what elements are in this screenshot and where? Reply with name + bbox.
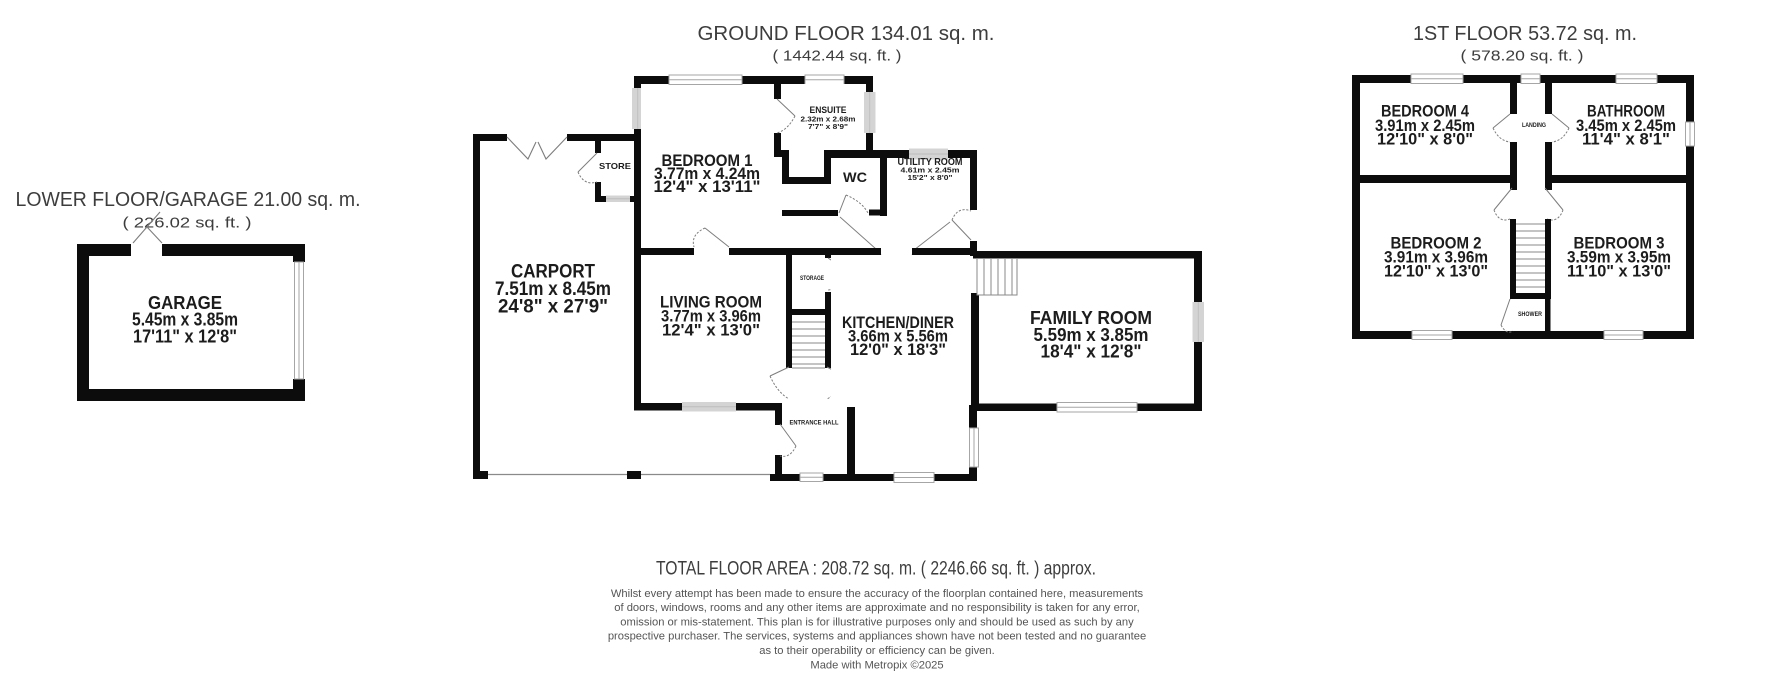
svg-text:TOTAL FLOOR AREA : 208.72 sq.: TOTAL FLOOR AREA : 208.72 sq. m. ( 2246.…: [656, 559, 1096, 580]
svg-text:11'10" x 13'0": 11'10" x 13'0": [1567, 262, 1671, 281]
svg-text:STORE: STORE: [599, 161, 631, 171]
svg-text:24'8" x 27'9": 24'8" x 27'9": [498, 297, 608, 318]
svg-text:omission or mis-statement. Thi: omission or mis-statement. This plan is …: [620, 617, 1134, 629]
svg-text:GROUND FLOOR 134.01 sq. m.: GROUND FLOOR 134.01 sq. m.: [698, 23, 995, 45]
svg-text:Whilst every attempt has been: Whilst every attempt has been made to en…: [611, 588, 1144, 600]
svg-text:LANDING: LANDING: [1522, 122, 1546, 129]
svg-text:prospective purchaser. The ser: prospective purchaser. The services, sys…: [608, 631, 1146, 643]
svg-text:STORAGE: STORAGE: [800, 275, 824, 282]
svg-text:11'4" x 8'1": 11'4" x 8'1": [1582, 130, 1670, 149]
svg-text:12'10" x 13'0": 12'10" x 13'0": [1384, 262, 1488, 281]
svg-text:12'0" x 18'3": 12'0" x 18'3": [850, 340, 946, 359]
svg-text:SHOWER: SHOWER: [1518, 311, 1542, 318]
svg-text:( 226.02 sq. ft. ): ( 226.02 sq. ft. ): [123, 215, 252, 232]
svg-text:12'4" x 13'0": 12'4" x 13'0": [662, 321, 760, 340]
svg-text:17'11" x 12'8": 17'11" x 12'8": [133, 327, 237, 347]
svg-text:Made with Metropix ©2025: Made with Metropix ©2025: [810, 660, 943, 672]
svg-text:WC: WC: [843, 169, 867, 185]
svg-text:7'7" x 8'9": 7'7" x 8'9": [808, 122, 848, 131]
svg-text:ENSUITE: ENSUITE: [810, 105, 847, 115]
svg-text:12'10" x 8'0": 12'10" x 8'0": [1377, 130, 1473, 149]
svg-text:of doors, windows, rooms and a: of doors, windows, rooms and any other i…: [614, 602, 1139, 614]
svg-text:( 578.20 sq. ft. ): ( 578.20 sq. ft. ): [1461, 48, 1584, 65]
svg-text:18'4" x 12'8": 18'4" x 12'8": [1041, 342, 1142, 362]
svg-text:ENTRANCE HALL: ENTRANCE HALL: [790, 420, 839, 427]
svg-text:LOWER FLOOR/GARAGE 21.00 sq. m: LOWER FLOOR/GARAGE 21.00 sq. m.: [16, 189, 361, 211]
svg-text:15'2" x 8'0": 15'2" x 8'0": [908, 173, 953, 182]
svg-text:( 1442.44 sq. ft. ): ( 1442.44 sq. ft. ): [773, 48, 902, 65]
svg-text:12'4" x 13'11": 12'4" x 13'11": [654, 177, 761, 196]
svg-text:1ST FLOOR 53.72 sq. m.: 1ST FLOOR 53.72 sq. m.: [1413, 23, 1637, 45]
svg-text:as to their operability or eff: as to their operability or efficiency ca…: [759, 645, 994, 657]
